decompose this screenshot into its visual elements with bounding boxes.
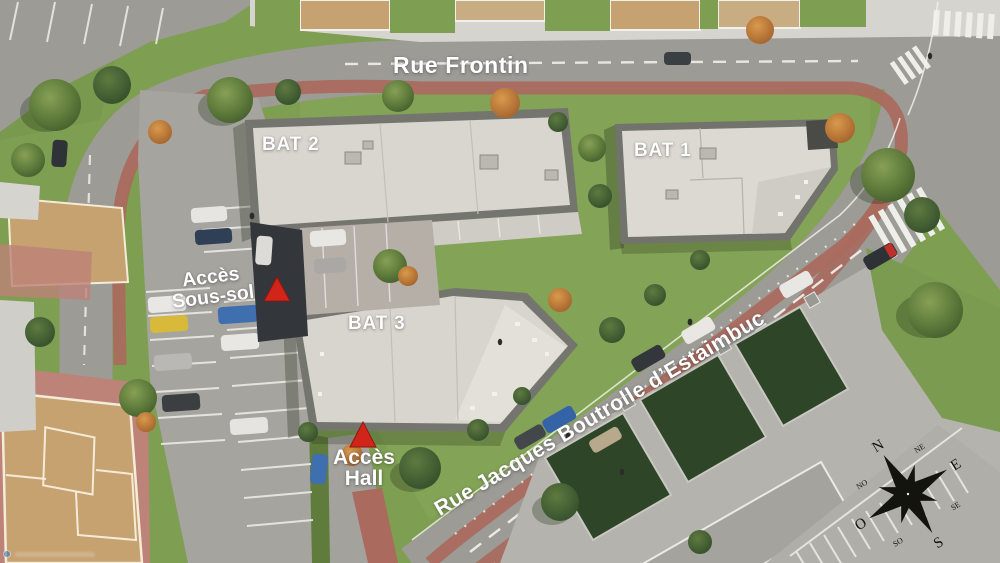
watermark-text-blur (15, 552, 95, 557)
building-label-bat1: BAT 1 (634, 141, 691, 160)
access-hall-line2: Hall (312, 468, 416, 489)
site-plan-render: N E S O NE SE SO NO Rue Frontin Rue Jacq… (0, 0, 1000, 563)
access-label-hall: Accès Hall (312, 447, 416, 489)
street-name-rue-frontin: Rue Frontin (393, 54, 529, 77)
access-hall-line1: Accès (312, 447, 416, 468)
building-label-bat3: BAT 3 (348, 314, 405, 333)
watermark-logo-icon (3, 550, 11, 558)
watermark (3, 549, 103, 559)
building-label-bat2: BAT 2 (262, 135, 319, 154)
